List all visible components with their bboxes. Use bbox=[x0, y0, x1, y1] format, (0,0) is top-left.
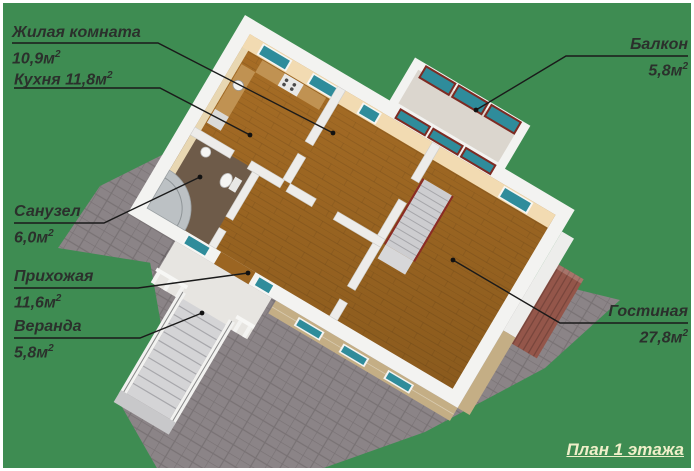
room-name: Санузел bbox=[14, 203, 81, 221]
plan-caption: План 1 этажа bbox=[566, 440, 684, 460]
area-exponent: 2 bbox=[48, 343, 54, 354]
area-value: 11,6м bbox=[14, 294, 56, 311]
area-exponent: 2 bbox=[48, 228, 54, 239]
floor-plan-image: Жилая комната 10,9м2 Кухня 11,8м2 Балкон… bbox=[0, 0, 694, 471]
room-label-gostinaya: Гостиная 27,8м2 bbox=[608, 303, 688, 347]
room-area: 5,8м2 bbox=[14, 340, 82, 362]
room-name-and-area: Кухня 11,8м2 bbox=[14, 67, 113, 89]
area-exponent: 2 bbox=[55, 49, 61, 60]
room-label-veranda: Веранда 5,8м2 bbox=[14, 318, 82, 362]
room-area: 27,8м2 bbox=[608, 325, 688, 347]
area-exponent: 2 bbox=[56, 293, 62, 304]
room-name: Балкон bbox=[630, 36, 688, 54]
area-exponent: 2 bbox=[682, 328, 688, 339]
area-exponent: 2 bbox=[107, 70, 113, 81]
room-name: Кухня bbox=[14, 71, 61, 88]
room-name: Гостиная bbox=[608, 303, 688, 321]
room-name: Веранда bbox=[14, 318, 82, 336]
area-value: 6,0м bbox=[14, 229, 48, 246]
room-name: Жилая комната bbox=[12, 24, 141, 42]
room-label-sanuzel: Санузел 6,0м2 bbox=[14, 203, 81, 247]
area-value: 10,9м bbox=[12, 50, 55, 67]
room-area: 11,6м2 bbox=[14, 290, 93, 312]
area-value: 5,8м bbox=[14, 344, 48, 361]
area-value: 5,8м bbox=[648, 62, 682, 79]
area-value: 11,8м bbox=[65, 71, 107, 88]
area-value: 27,8м bbox=[639, 329, 682, 346]
room-name: Прихожая bbox=[14, 268, 93, 286]
room-label-balkon: Балкон 5,8м2 bbox=[630, 36, 688, 80]
room-label-zhilaya-komnata: Жилая комната 10,9м2 bbox=[12, 24, 141, 68]
room-label-kuhnya: Кухня 11,8м2 bbox=[14, 67, 113, 89]
area-exponent: 2 bbox=[682, 61, 688, 72]
room-label-prihozhaya: Прихожая 11,6м2 bbox=[14, 268, 93, 312]
room-area: 5,8м2 bbox=[630, 58, 688, 80]
room-area: 10,9м2 bbox=[12, 46, 141, 68]
room-area: 6,0м2 bbox=[14, 225, 81, 247]
